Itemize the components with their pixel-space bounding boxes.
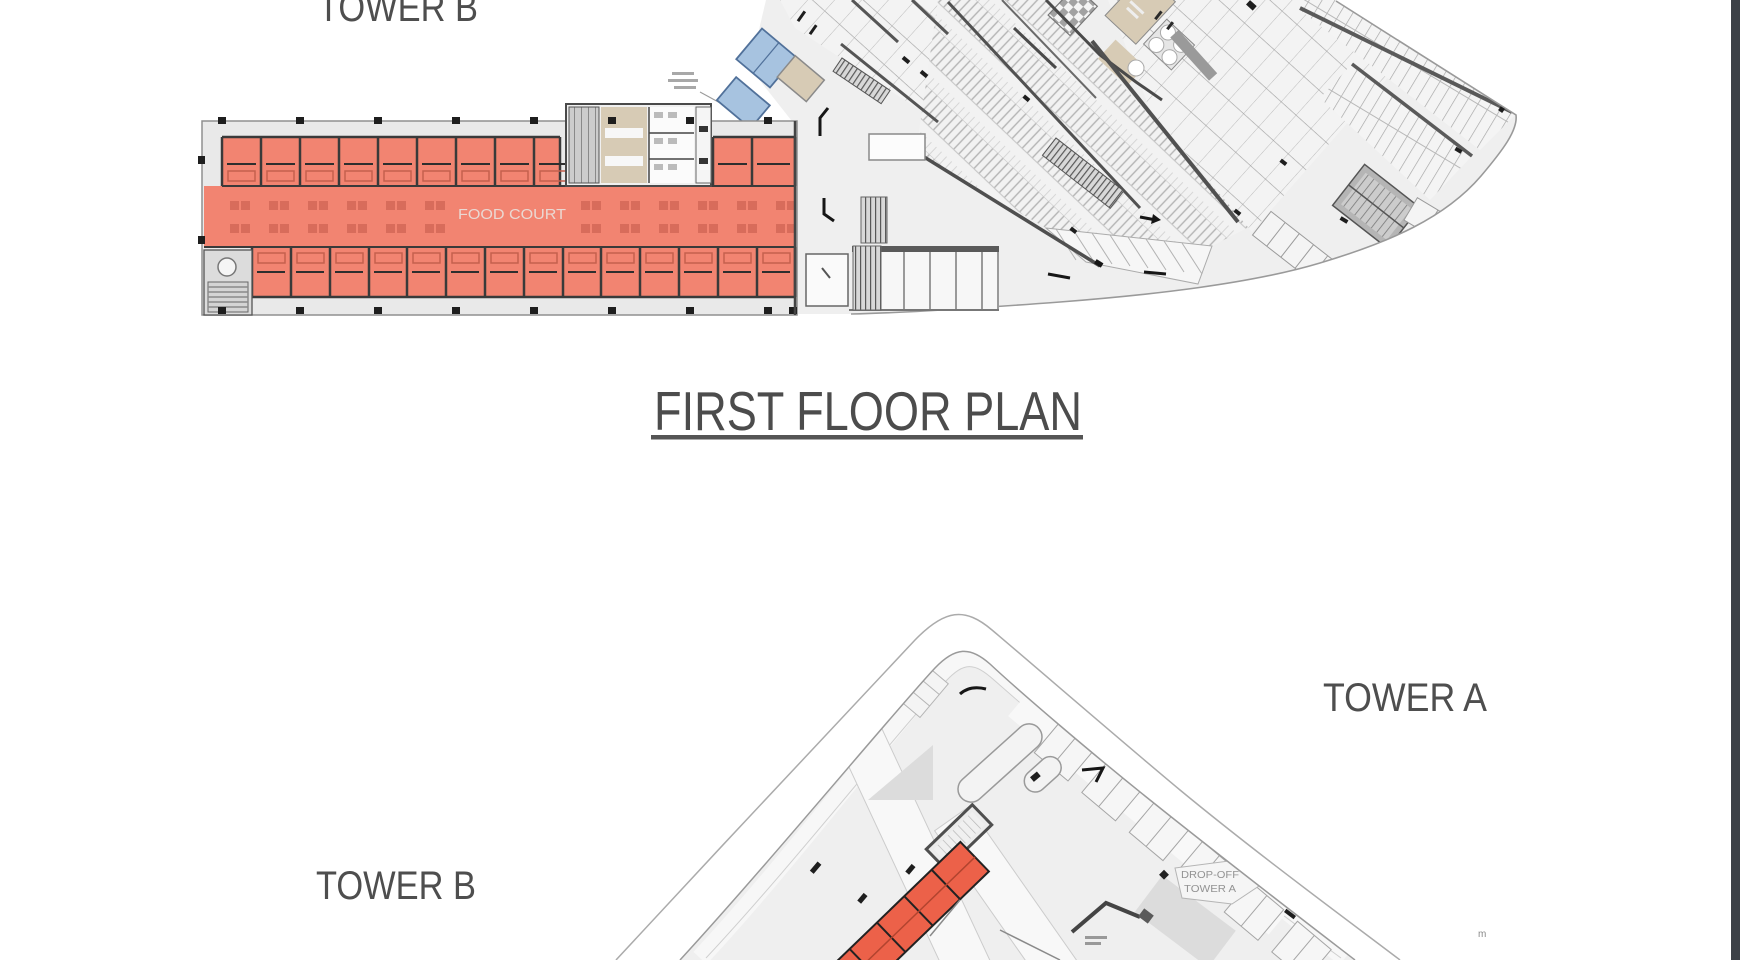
svg-text:m: m: [1478, 929, 1486, 940]
svg-text:DROP-OFF: DROP-OFF: [1181, 870, 1239, 881]
svg-text:FOOD COURT: FOOD COURT: [458, 206, 566, 223]
svg-text:TOWER B: TOWER B: [316, 864, 476, 908]
svg-text:TOWER A: TOWER A: [1184, 884, 1236, 895]
svg-text:TOWER A: TOWER A: [1323, 676, 1487, 720]
svg-text:FIRST FLOOR PLAN: FIRST FLOOR PLAN: [654, 380, 1082, 442]
svg-text:TOWER B: TOWER B: [318, 0, 478, 30]
